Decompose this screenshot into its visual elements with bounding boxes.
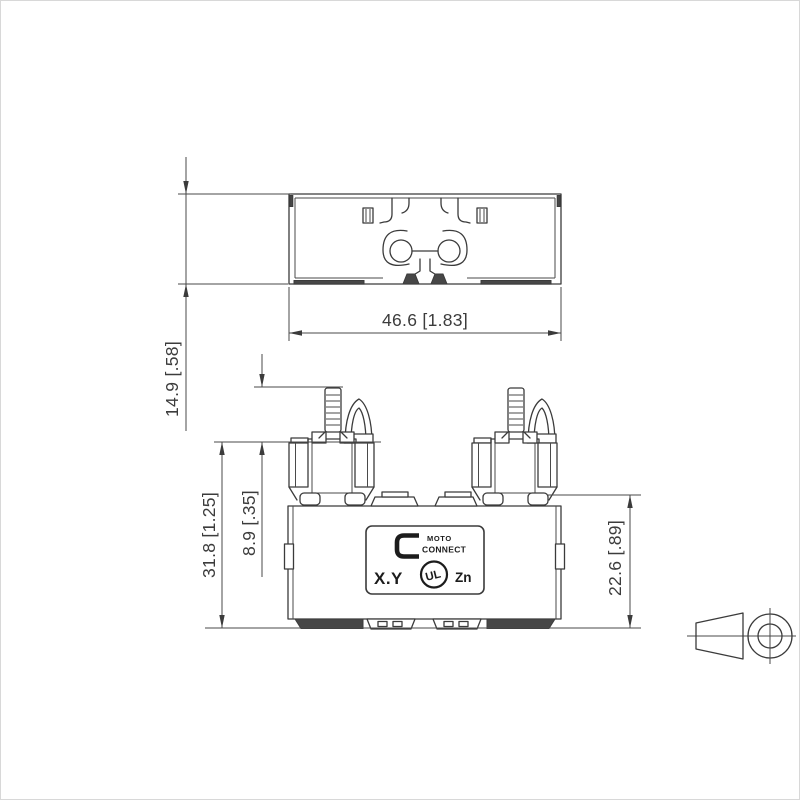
latch-slot-left	[363, 208, 373, 223]
stem-wedge-left	[403, 274, 419, 284]
dimension-top-height: 14.9 [.58]	[162, 157, 291, 431]
brand-logo-line1: MOTO	[427, 534, 452, 543]
drawing-canvas: MOTO CONNECT X.Y UL Zn 46.6 [1.83]	[0, 0, 800, 800]
terminal-assembly-left	[289, 388, 374, 505]
dimension-top-width: 46.6 [1.83]	[289, 287, 561, 341]
clip-circle-right	[438, 240, 460, 262]
technical-drawing: MOTO CONNECT X.Y UL Zn 46.6 [1.83]	[1, 1, 800, 801]
rating-text: X.Y	[374, 569, 403, 588]
top-view-body-outline	[289, 194, 561, 284]
top-view	[289, 194, 561, 284]
stem-wedge-right	[431, 274, 447, 284]
latch-slot-right	[477, 208, 487, 223]
clip-circle-left	[390, 240, 412, 262]
front-view-body-outline	[288, 506, 561, 619]
dimension-stud-height-text: 8.9 [.35]	[239, 490, 259, 556]
projection-symbol-icon	[687, 608, 796, 664]
material-text: Zn	[455, 570, 472, 585]
dimension-body-height-text: 22.6 [.89]	[605, 520, 625, 596]
dimension-overall-height-text: 31.8 [1.25]	[199, 492, 219, 578]
front-view: MOTO CONNECT X.Y UL Zn	[285, 388, 565, 629]
brand-logo-line2: CONNECT	[422, 545, 467, 555]
dimension-top-width-text: 46.6 [1.83]	[382, 310, 468, 330]
terminal-assembly-right	[472, 388, 557, 505]
dimension-top-height-text: 14.9 [.58]	[162, 341, 182, 417]
